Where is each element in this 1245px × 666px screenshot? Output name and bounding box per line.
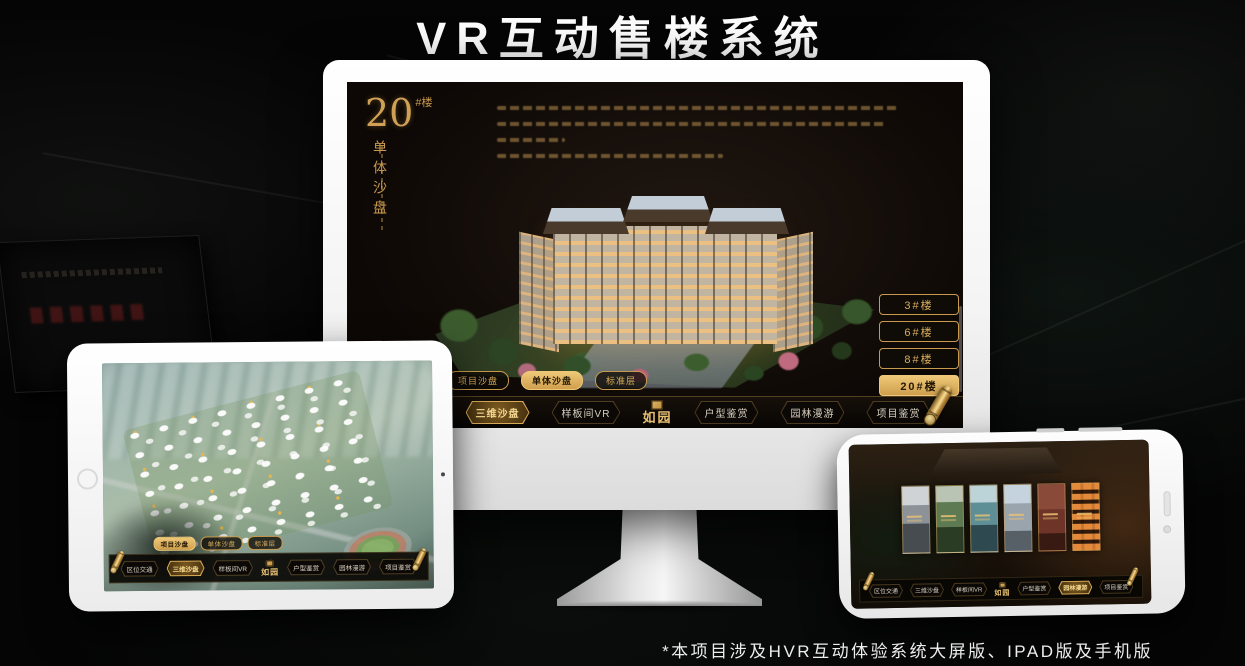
gallery-panel-garden[interactable]	[935, 485, 964, 553]
nav-item-label: 项目鉴赏	[380, 559, 416, 573]
gallery-panel-courtyard[interactable]	[901, 485, 930, 553]
page-title: VR互动售楼系统	[0, 2, 1245, 67]
nav-item-label: 三维沙盘	[911, 584, 943, 597]
logo-text: 如园	[994, 589, 1010, 596]
building-button-6[interactable]: 6#楼	[879, 321, 959, 342]
phone-device: 区位交通 三维沙盘 样板间VR 如园 户型鉴赏 园林漫游 项目鉴赏	[836, 429, 1185, 619]
logo-text: 如园	[642, 412, 672, 425]
building-button-3[interactable]: 3#楼	[879, 294, 959, 315]
building-button-8[interactable]: 8#楼	[879, 348, 959, 369]
description-line	[497, 138, 565, 142]
building-3d-model-viewport[interactable]	[405, 148, 910, 400]
model-building	[553, 196, 777, 344]
brand-logo: 如园	[994, 582, 1010, 596]
brand-logo: 如园	[642, 400, 672, 425]
description-line	[497, 106, 897, 110]
phone-power-button[interactable]	[1078, 427, 1122, 432]
nav-item-3d-sandbox[interactable]: 三维沙盘	[910, 583, 944, 598]
nav-item-showroom-vr[interactable]: 样板间VR	[212, 560, 253, 576]
logo-seal-icon	[266, 559, 274, 566]
block-subtitle-rule	[381, 144, 383, 230]
plaque-subtext-marks	[21, 267, 162, 278]
nav-item-label: 户型鉴赏	[1018, 582, 1050, 595]
nav-item-label: 区位交通	[121, 561, 157, 575]
gallery-panel-interior-shelf[interactable]	[1071, 482, 1100, 550]
gallery-panel-building[interactable]	[1003, 484, 1032, 552]
nav-item-unit-gallery[interactable]: 户型鉴赏	[287, 559, 325, 575]
nav-item-3d-sandbox-active[interactable]: 三维沙盘	[466, 401, 530, 424]
model-roof	[705, 208, 789, 234]
tab-standard-floor[interactable]: 标准层	[595, 371, 647, 390]
poster-canvas: VR互动售楼系统 20#楼 单体沙盘	[0, 0, 1245, 666]
brand-logo: 如园	[261, 559, 279, 575]
tablet-camera-dot	[441, 472, 445, 476]
phone-screen: 区位交通 三维沙盘 样板间VR 如园 户型鉴赏 园林漫游 项目鉴赏	[849, 440, 1152, 609]
nav-item-label: 样板间VR	[213, 561, 252, 575]
tablet-tab-single-sandbox[interactable]: 单体沙盘	[201, 536, 243, 550]
tablet-tab-standard-floor[interactable]: 标准层	[248, 536, 283, 550]
view-tabs: 项目沙盘 单体沙盘 标准层	[447, 371, 647, 390]
screen-scrollbar[interactable]	[959, 306, 962, 392]
tablet-tab-project-sandbox-active[interactable]: 项目沙盘	[154, 537, 196, 551]
nav-item-project-gallery[interactable]: 项目鉴赏	[866, 401, 930, 424]
nav-item-label: 园林漫游	[334, 560, 370, 574]
model-roof	[543, 208, 629, 234]
phone-volume-button[interactable]	[1036, 428, 1064, 432]
phone-speaker-slot	[1163, 491, 1170, 516]
gallery-panel-redwall[interactable]	[1037, 483, 1066, 551]
phone-camera-dot	[1163, 525, 1171, 533]
logo-text: 如园	[261, 567, 279, 575]
nav-item-garden-roam[interactable]: 园林漫游	[333, 559, 371, 575]
tablet-view-tabs: 项目沙盘 单体沙盘 标准层	[154, 536, 283, 551]
nav-item-label: 三维沙盘	[467, 402, 529, 423]
nav-item-location-traffic[interactable]: 区位交通	[120, 560, 158, 576]
nav-item-label: 样板间VR	[553, 402, 620, 423]
nav-item-label: 户型鉴赏	[288, 560, 324, 574]
nav-item-label: 区位交通	[870, 584, 902, 597]
building-selector: 3#楼 6#楼 8#楼 20#楼	[879, 294, 959, 396]
block-unit: #楼	[415, 97, 432, 109]
nav-item-label: 项目鉴赏	[867, 402, 929, 423]
nav-item-location-traffic[interactable]: 区位交通	[869, 583, 903, 598]
nav-item-label: 户型鉴赏	[695, 402, 757, 423]
scene-gallery	[901, 482, 1100, 553]
tablet-screen: 项目沙盘 单体沙盘 标准层 区位交通 三维沙盘 样板间VR 如园 户型鉴赏 园林…	[102, 360, 434, 591]
nav-item-label: 样板间VR	[952, 583, 987, 596]
logo-seal-icon	[999, 582, 1006, 588]
tablet-nav-bar: 区位交通 三维沙盘 样板间VR 如园 户型鉴赏 园林漫游 项目鉴赏	[109, 552, 429, 584]
nav-item-showroom-vr[interactable]: 样板间VR	[951, 582, 988, 597]
tab-single-sandbox-active[interactable]: 单体沙盘	[521, 371, 583, 390]
block-number: 20	[365, 91, 413, 135]
nav-item-showroom-vr[interactable]: 样板间VR	[552, 401, 621, 424]
model-building-wing-right	[773, 232, 813, 353]
nav-item-unit-gallery[interactable]: 户型鉴赏	[1017, 581, 1051, 596]
plaque-red-marks	[30, 304, 152, 324]
nav-item-label: 园林漫游	[781, 402, 843, 423]
nav-item-unit-gallery[interactable]: 户型鉴赏	[694, 401, 758, 424]
tab-project-sandbox[interactable]: 项目沙盘	[447, 371, 509, 390]
block-subtitle-vertical: 单体沙盘	[369, 140, 389, 220]
logo-seal-icon	[651, 400, 663, 410]
monitor-stand-shadow	[547, 600, 772, 614]
description-line	[497, 122, 885, 126]
nav-item-label: 园林漫游	[1059, 581, 1091, 594]
tablet-home-button[interactable]	[77, 468, 98, 489]
gallery-panel-aerial[interactable]	[969, 484, 998, 552]
tablet-device: 项目沙盘 单体沙盘 标准层 区位交通 三维沙盘 样板间VR 如园 户型鉴赏 园林…	[67, 340, 454, 611]
model-building-facade	[553, 226, 777, 344]
model-roof	[623, 196, 713, 222]
nav-item-garden-roam[interactable]: 园林漫游	[780, 401, 844, 424]
nav-item-label: 三维沙盘	[167, 561, 203, 575]
footnote-text: *本项目涉及HVR互动体验系统大屏版、IPAD版及手机版	[662, 637, 1153, 662]
nav-item-garden-roam-active[interactable]: 园林漫游	[1058, 580, 1092, 595]
nav-item-3d-sandbox-active[interactable]: 三维沙盘	[166, 560, 204, 576]
